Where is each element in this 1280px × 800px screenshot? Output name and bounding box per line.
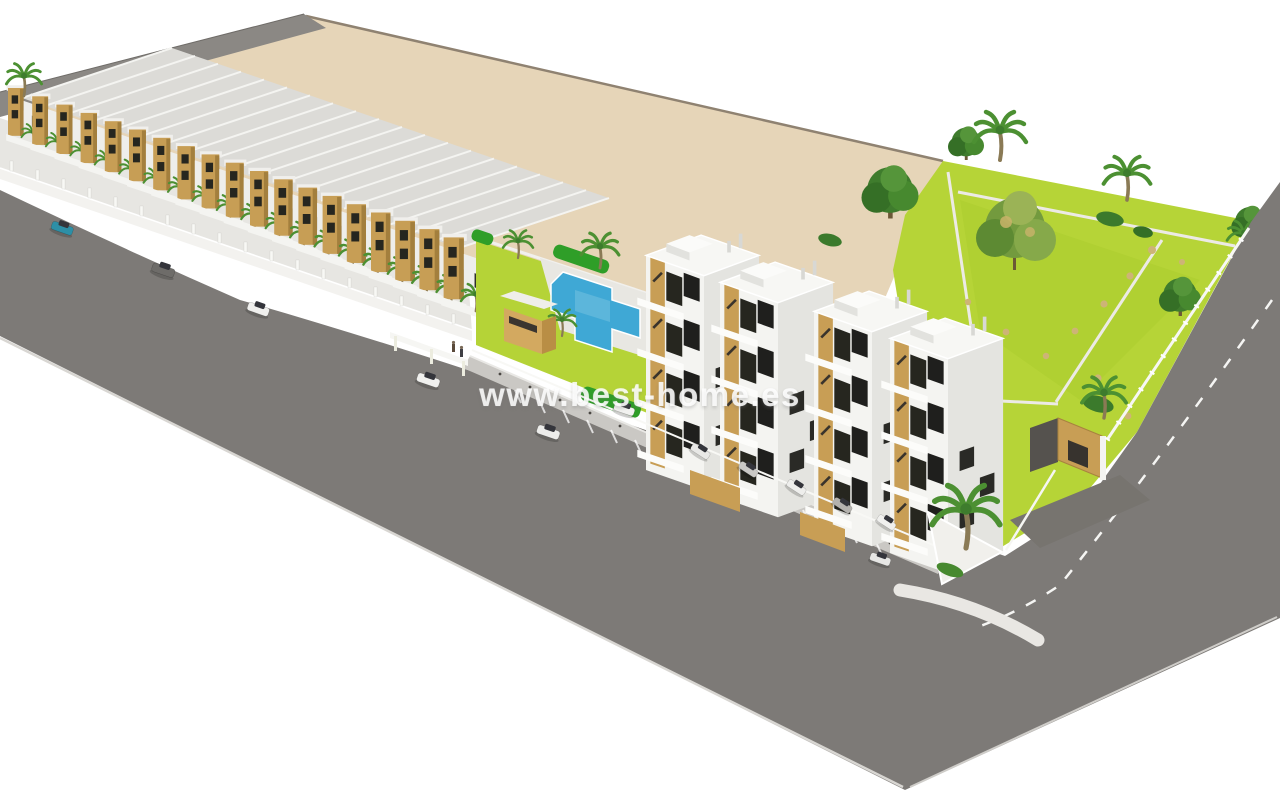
palm-tree: [974, 112, 1026, 160]
tree: [948, 126, 984, 160]
palm-tree: [1104, 157, 1151, 200]
people: [452, 341, 463, 357]
site-render: www.best-home.es: [0, 0, 1280, 800]
watermark: www.best-home.es: [479, 376, 801, 414]
